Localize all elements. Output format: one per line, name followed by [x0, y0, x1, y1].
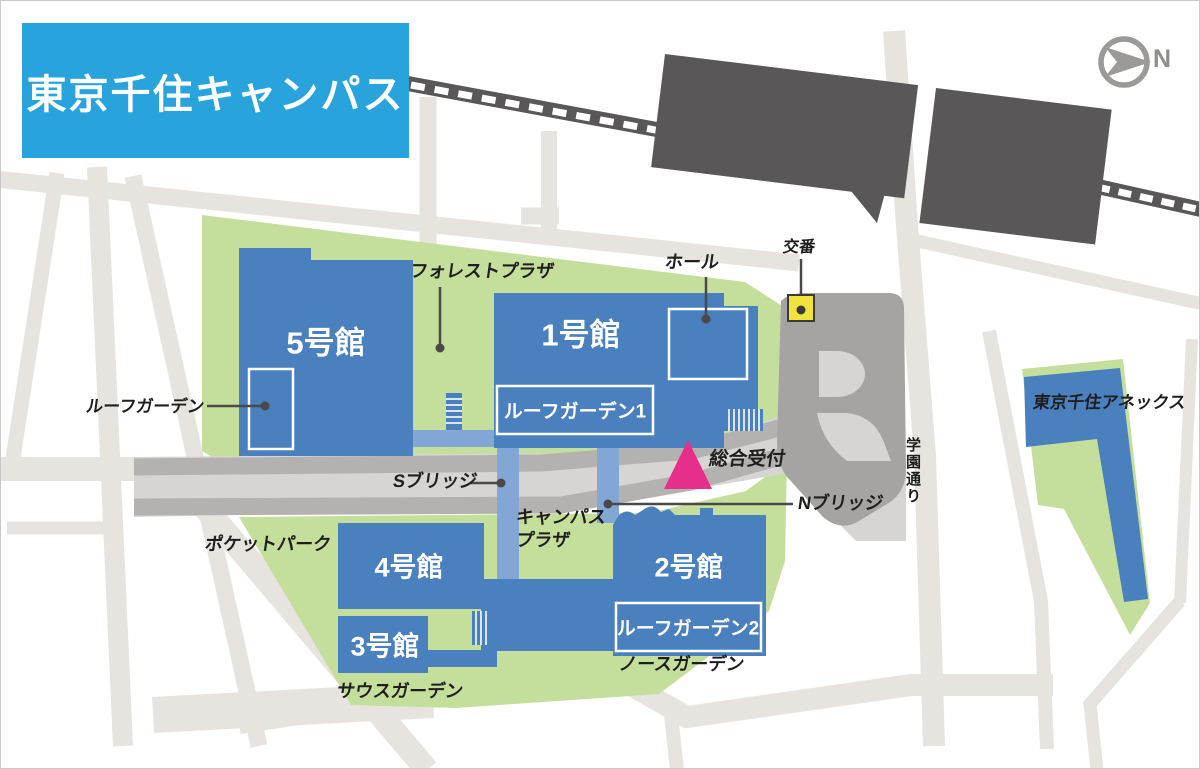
- roof-garden-2-label: ルーフガーデン2: [617, 614, 759, 641]
- street-west-2: [97, 167, 123, 746]
- north-label: N: [1153, 45, 1171, 74]
- station-east-exit: [919, 88, 1111, 245]
- roof-garden-label: ルーフガーデン: [85, 397, 206, 417]
- roof-garden-dot: [261, 402, 270, 411]
- campus-map: 東京千住キャンパス N 北千住駅 東口（電大口） 5号館 1号館 4号館 3号館…: [0, 0, 1200, 769]
- building-connector: [481, 579, 619, 651]
- street-west-1: [11, 173, 57, 471]
- forest-plaza-dot: [436, 344, 445, 353]
- street-annex-east: [1180, 339, 1192, 603]
- annex-label: 東京千住アネックス: [1032, 393, 1187, 413]
- station-blocks: [651, 54, 1112, 245]
- s-bridge-label: Sブリッジ: [391, 471, 478, 493]
- street-south-stub: [671, 715, 677, 769]
- campus-plaza-label-line2: プラザ: [514, 530, 571, 552]
- building-1: [494, 293, 758, 448]
- street-ne-diagonal: [904, 238, 1200, 304]
- koban-dot: [797, 306, 806, 315]
- roof-garden-1-label: ルーフガーデン1: [504, 397, 646, 424]
- station-kitasenju: [651, 54, 918, 198]
- north-garden-label: ノースガーデン: [617, 654, 745, 676]
- walkway-west: [413, 430, 503, 447]
- building-5-label: 5号館: [286, 318, 365, 363]
- building-4-label: 4号館: [374, 546, 443, 585]
- s-bridge-dot: [497, 479, 506, 488]
- s-bridge: [497, 430, 519, 586]
- gakuen-dori-label: 学園通り: [902, 437, 923, 505]
- hall-dot: [702, 315, 711, 324]
- campus-plaza-label-line1: キャンパス: [514, 507, 607, 529]
- koban-label: 交番: [782, 238, 817, 257]
- building-3-label: 3号館: [350, 625, 419, 664]
- building-1-label: 1号館: [541, 310, 620, 355]
- hall-label: ホール: [663, 252, 720, 274]
- station-notch: [851, 191, 885, 223]
- pocket-park-label: ポケットパーク: [203, 534, 332, 556]
- rotary: [777, 293, 906, 526]
- reception-label: 総合受付: [707, 449, 786, 472]
- north-compass: [1101, 39, 1151, 85]
- south-garden-label: サウスガーデン: [335, 681, 464, 703]
- building-2-label: 2号館: [654, 546, 723, 585]
- forest-plaza-label: フォレストプラザ: [408, 261, 555, 283]
- n-bridge-label: Nブリッジ: [796, 493, 884, 515]
